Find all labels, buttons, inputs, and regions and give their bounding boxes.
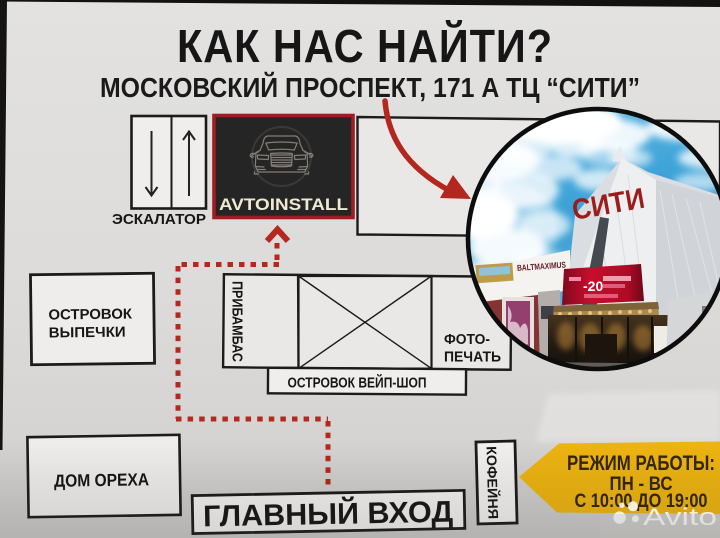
svg-text:МОСКОВСКИЙ ПРОСПЕКТ, 171 А ТЦ: МОСКОВСКИЙ ПРОСПЕКТ, 171 А ТЦ “СИТИ” xyxy=(100,71,640,103)
svg-text:ВЫПЕЧКИ: ВЫПЕЧКИ xyxy=(49,325,126,342)
svg-text:ОСТРОВОК ВЕЙП-ШОП: ОСТРОВОК ВЕЙП-ШОП xyxy=(288,374,427,392)
svg-text:ФОТО-: ФОТО- xyxy=(444,332,490,348)
svg-text:-20: -20 xyxy=(583,278,603,294)
svg-text:КАК НАС НАЙТИ?: КАК НАС НАЙТИ? xyxy=(177,20,553,72)
svg-text:ЭСКАЛАТОР: ЭСКАЛАТОР xyxy=(112,211,206,228)
svg-text:ОСТРОВОК: ОСТРОВОК xyxy=(48,307,132,324)
svg-text:AVTOINSTALL: AVTOINSTALL xyxy=(219,195,348,214)
svg-text:ПРИБАМБАС: ПРИБАМБАС xyxy=(229,281,245,362)
svg-text:ПЕЧАТЬ: ПЕЧАТЬ xyxy=(444,350,501,366)
